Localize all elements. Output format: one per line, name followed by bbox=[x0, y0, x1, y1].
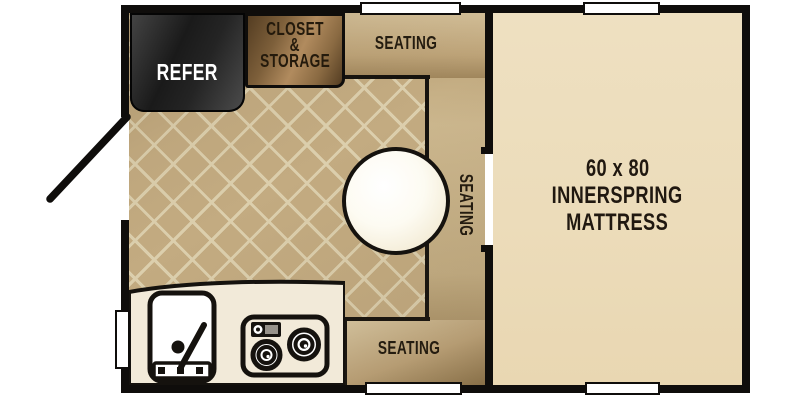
window-bottom-left bbox=[365, 382, 462, 395]
floorplan: REFER CLOSET & STORAGE SEATING SEATING S… bbox=[0, 0, 800, 400]
seating-right-label: SEATING bbox=[457, 160, 475, 250]
window-bottom-right bbox=[585, 382, 660, 395]
refrigerator-label-text: REFER bbox=[157, 61, 218, 84]
closet-label-line3: STORAGE bbox=[260, 53, 330, 69]
window-side-left bbox=[115, 310, 130, 369]
bench-edge-line-bottom bbox=[342, 317, 430, 321]
seating-top-label: SEATING bbox=[340, 34, 473, 52]
sink-icon bbox=[146, 289, 218, 385]
window-top-left bbox=[360, 2, 461, 15]
entry-door-icon bbox=[42, 110, 134, 206]
mattress-label: 60 x 80 INNERSPRING MATTRESS bbox=[493, 155, 742, 236]
closet-label: CLOSET & STORAGE bbox=[245, 21, 345, 69]
refrigerator-label: REFER bbox=[130, 61, 245, 84]
bench-edge-line-top bbox=[345, 75, 430, 79]
seating-right-label-text: SEATING bbox=[457, 174, 475, 236]
divider-wall-upper-cap bbox=[481, 147, 493, 154]
divider-wall-upper bbox=[485, 13, 493, 153]
divider-wall-lower bbox=[485, 245, 493, 385]
mattress-label-line1: 60 x 80 bbox=[586, 155, 650, 182]
wall-right bbox=[742, 5, 750, 393]
seating-bottom-label-text: SEATING bbox=[378, 339, 440, 357]
window-top-right bbox=[583, 2, 660, 15]
stove-icon bbox=[238, 311, 330, 381]
mattress-label-line3: MATTRESS bbox=[566, 209, 668, 236]
divider-wall-lower-cap bbox=[481, 245, 493, 252]
seating-bottom-label: SEATING bbox=[343, 339, 476, 357]
wall-left-upper bbox=[121, 5, 129, 117]
mattress-label-line2: INNERSPRING bbox=[552, 182, 683, 209]
dinette-table bbox=[342, 147, 450, 255]
seating-top-label-text: SEATING bbox=[375, 34, 437, 52]
